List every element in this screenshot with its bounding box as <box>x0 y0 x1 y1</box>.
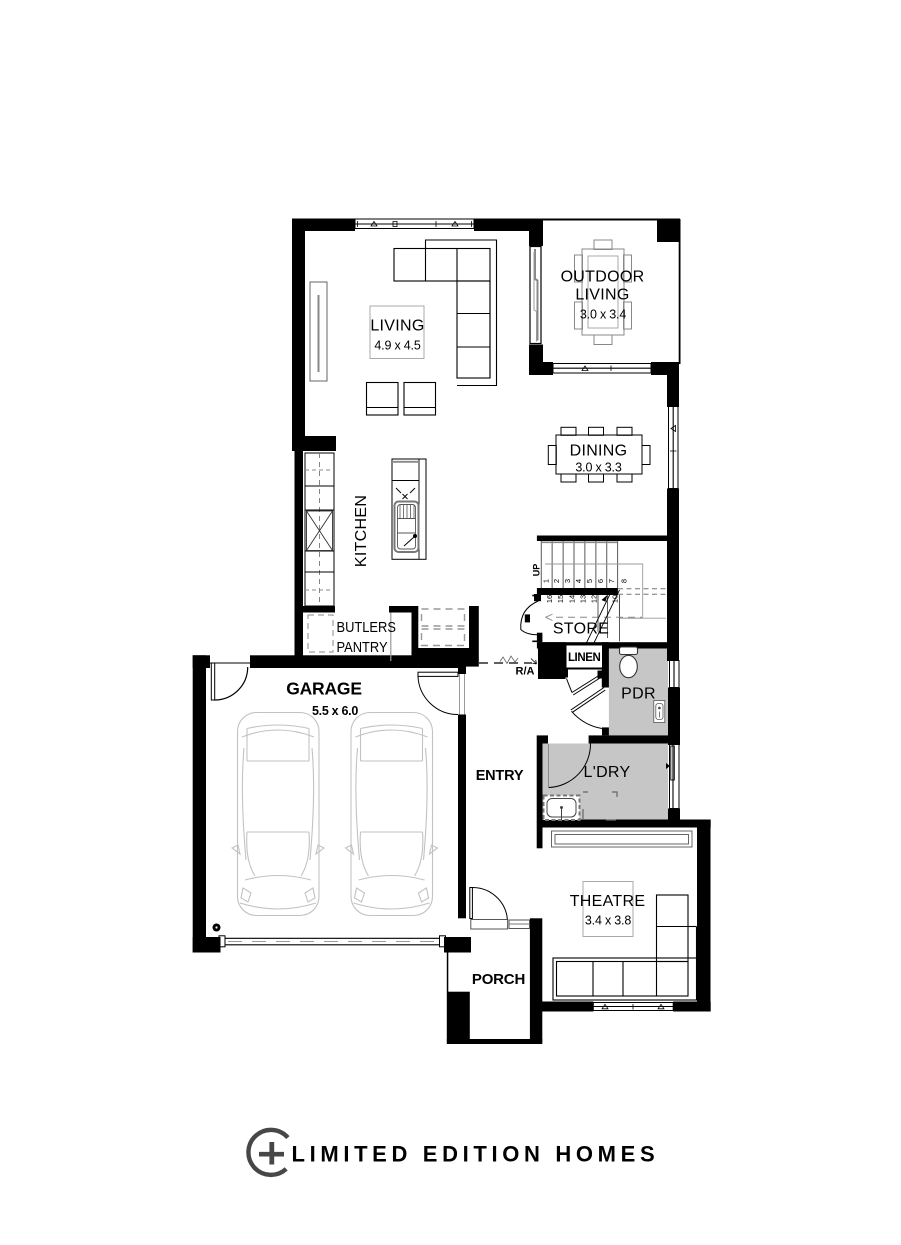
svg-text:7: 7 <box>607 579 616 583</box>
svg-text:8: 8 <box>620 579 629 583</box>
svg-text:4: 4 <box>574 579 583 583</box>
svg-text:2: 2 <box>552 579 561 583</box>
svg-text:10: 10 <box>610 595 619 603</box>
svg-text:PDR: PDR <box>621 686 656 703</box>
svg-text:LINEN: LINEN <box>568 652 601 664</box>
svg-text:DINING: DINING <box>570 443 628 460</box>
svg-text:ENTRY: ENTRY <box>476 768 524 784</box>
svg-text:UP: UP <box>532 564 542 577</box>
svg-text:OUTDOOR: OUTDOOR <box>561 269 645 286</box>
svg-text:3.0 x 3.3: 3.0 x 3.3 <box>575 461 621 475</box>
svg-text:3: 3 <box>563 579 572 583</box>
svg-text:LIMITED EDITION HOMES: LIMITED EDITION HOMES <box>292 1141 660 1166</box>
svg-text:5: 5 <box>585 579 594 583</box>
svg-text:L'DRY: L'DRY <box>584 764 631 781</box>
svg-text:LIVING: LIVING <box>575 287 629 304</box>
svg-text:14: 14 <box>567 595 576 603</box>
svg-text:PANTRY: PANTRY <box>337 638 389 655</box>
svg-text:13: 13 <box>579 595 588 603</box>
svg-text:STORE: STORE <box>553 621 609 638</box>
svg-text:BUTLERS: BUTLERS <box>337 618 396 635</box>
svg-text:KITCHEN: KITCHEN <box>353 495 370 567</box>
svg-text:1: 1 <box>541 579 550 583</box>
svg-text:THEATRE: THEATRE <box>570 893 646 910</box>
svg-text:6: 6 <box>596 579 605 583</box>
svg-text:PORCH: PORCH <box>472 971 525 988</box>
svg-text:3.4 x 3.8: 3.4 x 3.8 <box>585 914 631 928</box>
svg-text:R/A: R/A <box>516 666 535 678</box>
svg-text:3.0 x 3.4: 3.0 x 3.4 <box>580 308 626 322</box>
svg-text:GARAGE: GARAGE <box>286 679 362 699</box>
svg-text:16: 16 <box>545 595 554 603</box>
svg-text:5.5 x 6.0: 5.5 x 6.0 <box>312 704 358 718</box>
svg-text:LIVING: LIVING <box>370 318 424 335</box>
svg-text:12: 12 <box>590 595 599 603</box>
svg-text:15: 15 <box>556 595 565 603</box>
svg-text:4.9 x 4.5: 4.9 x 4.5 <box>374 339 420 353</box>
